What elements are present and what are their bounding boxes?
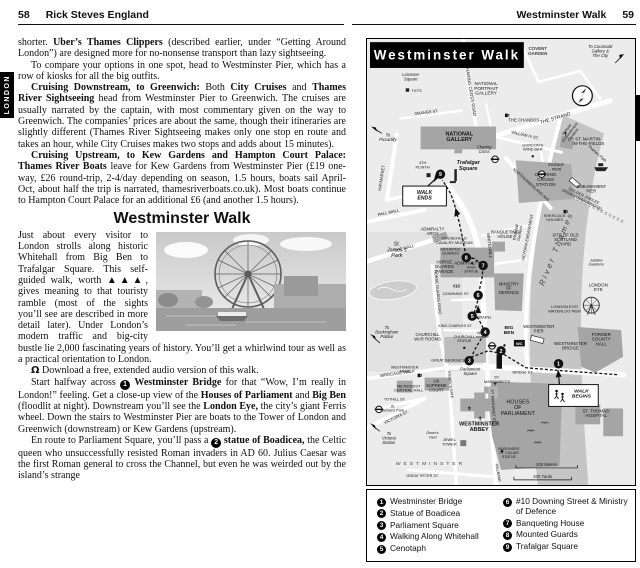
map-label-great-george-st: GREAT GEORGE ST. xyxy=(431,359,467,363)
tube-roundel-charing-cross xyxy=(491,156,499,162)
map-stop-6: 6 xyxy=(473,291,482,300)
map-label-king-charles-st: KING CHARLES ST. xyxy=(438,324,472,328)
map-label-jewel-tower: JEWELTOWER xyxy=(442,437,457,446)
legend-column-2: 6#10 Downing Street & Ministry of Defenc… xyxy=(503,495,629,556)
svg-text:2: 2 xyxy=(499,349,502,355)
svg-text:7: 7 xyxy=(482,263,485,269)
legend-item: 4Walking Along Whitehall xyxy=(377,532,503,542)
map-canvas: WALKBEGINS WALKENDS xyxy=(367,39,635,485)
map-stop-3: 3 xyxy=(465,356,474,365)
legend-stop-label: Statue of Boadicea xyxy=(390,509,460,519)
map-stop-9: 9 xyxy=(436,169,445,178)
svg-text:1: 1 xyxy=(557,362,560,368)
map-label-jubilee-gardens: JubileeGardens xyxy=(589,258,604,267)
svg-text:9: 9 xyxy=(439,172,442,178)
walk-intro-block: Just about every visitor to London strol… xyxy=(18,230,346,366)
paragraph-compare-options: To compare your options in one spot, hea… xyxy=(18,60,346,83)
legend-stop-label: Walking Along Whitehall xyxy=(390,532,479,542)
scale-meters-label: 200 Meters xyxy=(536,462,557,467)
book-title: Rick Steves England xyxy=(46,9,149,21)
map-stop-7: 7 xyxy=(478,261,487,270)
map-label-bridge-st: BRIDGE ST. xyxy=(513,371,534,375)
legend-stop-number: 5 xyxy=(377,545,386,554)
westminster-walk-map: WALKBEGINS WALKENDS xyxy=(366,38,636,562)
map-label-the-chandos: THE CHANDOS xyxy=(509,118,540,123)
map-label-methodist-central-hall: METHODISTCENTRAL HALL xyxy=(394,384,424,393)
book-spread: 58Rick Steves England Westminster Walk59… xyxy=(0,0,640,568)
map-label-number-10: #10 xyxy=(453,283,461,288)
inline-stop-badge: 2 xyxy=(211,438,221,448)
compass-icon xyxy=(572,86,592,106)
boat-shape xyxy=(216,312,248,321)
wc-box: WC xyxy=(514,340,525,346)
legend-stop-label: Banqueting House xyxy=(516,519,584,529)
legend-item: 8Mounted Guards xyxy=(503,530,629,540)
inline-stop-badge: 1 xyxy=(120,380,130,390)
legend-stop-label: Cenotaph xyxy=(390,544,426,554)
map-label-leicester-square: LeicesterSquare xyxy=(402,72,420,81)
map-label-st-martin: ST. MARTIN-IN-THE-FIELDS xyxy=(572,136,604,146)
fourth-plinth-icon xyxy=(427,173,431,177)
tube-roundel-westminster xyxy=(488,343,496,349)
legend-stop-label: Parliament Square xyxy=(390,521,459,531)
map-frame: WALKBEGINS WALKENDS xyxy=(366,38,636,486)
paragraph-westminster-bridge: Start halfway across 1 Westminster Bridg… xyxy=(18,377,346,435)
svg-text:5: 5 xyxy=(471,314,474,320)
paragraph-audio-download: Ω Download a free, extended audio versio… xyxy=(18,365,346,376)
paragraph-boadicea: En route to Parliament Square, you’ll pa… xyxy=(18,435,346,482)
svg-text:6: 6 xyxy=(477,293,480,299)
legend-item: 3Parliament Square xyxy=(377,521,503,531)
svg-text:3: 3 xyxy=(468,359,471,365)
london-spine-tab-left: LONDON xyxy=(0,72,14,118)
walk-ends-label: WALKENDS xyxy=(417,190,434,201)
map-label-mounted-guards: MOUNTEDGUARDS xyxy=(440,247,460,256)
legend-item: 7Banqueting House xyxy=(503,519,629,529)
legend-stop-label: Trafalgar Square xyxy=(516,542,578,552)
map-title: Westminster Walk xyxy=(374,48,520,63)
paragraph-cruising-downstream: Cruising Downstream, to Greenwich: Both … xyxy=(18,82,346,150)
legend-column-1: 1Westminster Bridge 2Statue of Boadicea … xyxy=(377,495,503,556)
map-label-gordons-wine-bar: GORDON’SWINE BAR xyxy=(522,142,544,151)
map-label-tkts: TKTS xyxy=(412,88,422,93)
section-heading-westminster-walk: Westminster Walk xyxy=(18,213,346,224)
legend-stop-number: 6 xyxy=(503,498,512,507)
audio-headphones-icon: Ω xyxy=(31,365,40,376)
map-label-big-ben: BIGBEN xyxy=(504,325,515,336)
map-stop-2: 2 xyxy=(496,346,505,355)
map-stop-8: 8 xyxy=(462,253,471,262)
svg-text:8: 8 xyxy=(465,256,468,262)
map-label-national-gallery: NATIONALGALLERY xyxy=(445,131,473,143)
legend-stop-number: 8 xyxy=(503,531,512,540)
wc-label: WC xyxy=(516,341,523,346)
map-legend: 1Westminster Bridge 2Statue of Boadicea … xyxy=(366,489,636,562)
map-stop-4: 4 xyxy=(480,327,489,336)
legend-item: 9Trafalgar Square xyxy=(503,542,629,552)
map-label-waterloo-pier: LONDON EYE/WATERLOO PIER xyxy=(548,304,581,313)
map-label-westminster-area: WESTMINSTER xyxy=(396,461,465,467)
map-stop-5: 5 xyxy=(468,311,477,320)
left-page-number: 58 xyxy=(18,9,30,21)
left-page-body: shorter. Uber’s Thames Clippers (describ… xyxy=(18,37,346,482)
scale-yards-label: 200 Yards xyxy=(533,474,552,479)
legend-stop-label: Mounted Guards xyxy=(516,530,578,540)
legend-stop-number: 1 xyxy=(377,498,386,507)
legend-stop-number: 4 xyxy=(377,533,386,542)
right-page-header: Westminster Walk59 xyxy=(352,9,634,21)
tkts-booth-icon xyxy=(406,88,409,91)
map-label-st-thomas-hospital: ST. THOMAS’HOSPITAL xyxy=(582,408,610,418)
legend-stop-number: 2 xyxy=(377,509,386,518)
london-eye-photo xyxy=(156,232,346,331)
map-label-covent-garden: COVENTGARDEN xyxy=(528,46,547,56)
legend-stop-number: 7 xyxy=(503,519,512,528)
svg-text:4: 4 xyxy=(484,330,487,336)
paragraph-thames-clippers: shorter. Uber’s Thames Clippers (describ… xyxy=(18,37,346,60)
right-header-title: Westminster Walk xyxy=(516,9,606,21)
map-label-national-portrait-gallery: NATIONALPORTRAITGALLERY xyxy=(474,81,498,96)
legend-stop-number: 9 xyxy=(503,543,512,552)
left-header-rule xyxy=(18,24,344,25)
legend-item: 2Statue of Boadicea xyxy=(377,509,503,519)
nelson-column-base xyxy=(450,181,456,183)
map-label-tothill-st: TOTHILL ST. xyxy=(384,397,406,401)
map-stop-1: 1 xyxy=(554,359,563,368)
legend-stop-number: 3 xyxy=(377,521,386,530)
nelson-column-icon xyxy=(454,169,456,181)
map-label-trafalgar-square: TrafalgarSquare xyxy=(457,160,481,172)
legend-stop-label: #10 Downing Street & Ministry of Defence xyxy=(516,497,629,517)
right-header-rule xyxy=(352,24,636,25)
map-label-charing-cross-station: CHARINGCROSSSTATION xyxy=(535,172,557,187)
left-page-header: 58Rick Steves England xyxy=(18,9,149,21)
legend-item: 6#10 Downing Street & Ministry of Defenc… xyxy=(503,497,629,517)
map-label-churchill-war-rooms: CHURCHILLWAR ROOMS xyxy=(414,332,441,341)
map-label-downing-st: DOWNING ST. xyxy=(443,291,469,296)
legend-item: 1Westminster Bridge xyxy=(377,497,503,507)
legend-stop-label: Westminster Bridge xyxy=(390,497,462,507)
paragraph-cruising-upstream: Cruising Upstream, to Kew Gardens and Ha… xyxy=(18,150,346,206)
london-tab-label: LONDON xyxy=(4,75,11,114)
map-label-great-peter-st: GREAT PETER ST. xyxy=(406,474,438,478)
right-page-number: 59 xyxy=(622,9,634,21)
legend-item: 5Cenotaph xyxy=(377,544,503,554)
walk-begins-label: WALKBEGINS xyxy=(572,389,592,400)
map-title-box: Westminster Walk xyxy=(370,42,524,68)
